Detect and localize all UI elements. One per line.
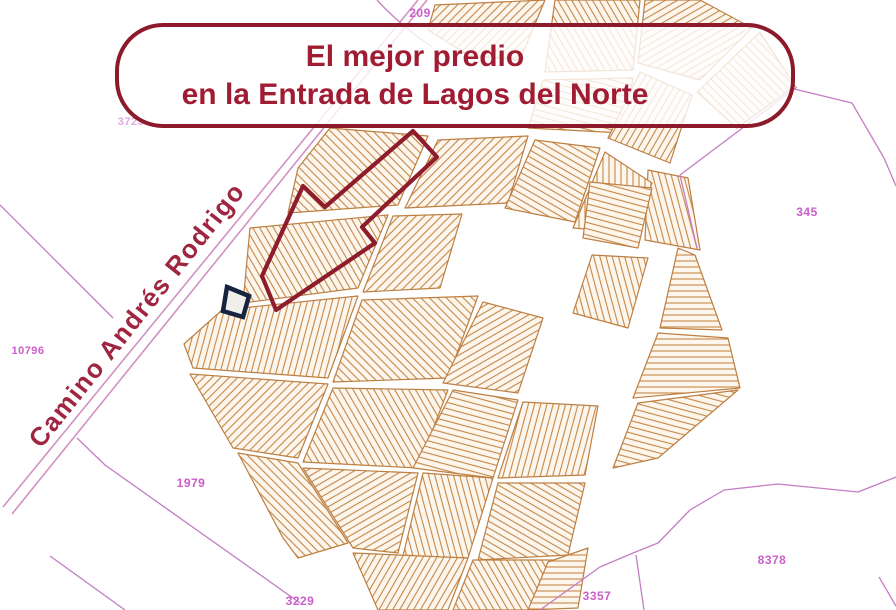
banner-line-2: en la Entrada de Lagos del Norte	[182, 76, 649, 114]
parcel-label-8378: 8378	[758, 553, 787, 567]
parcel-label-1979: 1979	[177, 476, 206, 490]
promo-banner: El mejor predio en la Entrada de Lagos d…	[115, 23, 795, 128]
parcel-label-209: 209	[409, 6, 431, 20]
banner-line-1: El mejor predio	[306, 38, 524, 76]
parcel-label-345: 345	[796, 205, 818, 219]
parcel-label-3357: 3357	[583, 589, 612, 603]
map-page: 3723 El mejor predio en la Entrada de La…	[0, 0, 896, 610]
parcel-label-3229: 3229	[286, 594, 315, 608]
parcel-label-10796: 10796	[11, 345, 44, 357]
